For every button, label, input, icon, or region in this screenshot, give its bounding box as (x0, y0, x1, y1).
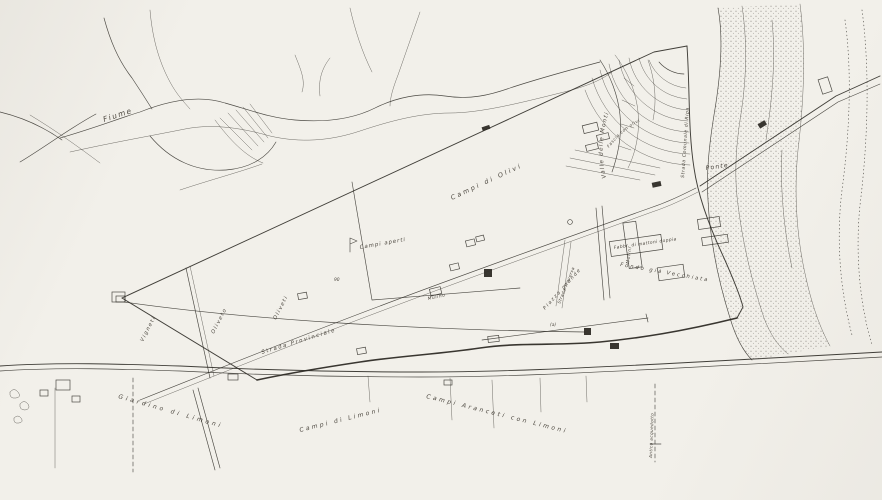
buildings (10, 125, 729, 423)
label-fascia-olivi: Fascia con olivi (606, 118, 641, 149)
label-oliveti: Oliveti (272, 295, 289, 321)
label-strada-traversa: Strada Traversa (556, 266, 575, 304)
label-marker-90: 90 (334, 277, 340, 283)
label-campi-di-olivi: Campi di Olivi (449, 162, 523, 202)
label-fabbrica: Fabbr. di mattoni doppia (613, 236, 677, 251)
parcel-dividers (186, 182, 610, 378)
terraces (566, 58, 690, 188)
map-canvas: Fiume Valle delle Monti Campi di Olivi P… (0, 0, 882, 500)
label-strada-provinciale: Strada Provinciale (261, 327, 337, 355)
label-giardino-di-limoni: Giardino di Limoni (117, 393, 223, 430)
label-oliveto: Oliveto (210, 307, 228, 335)
label-fiume: Fiume (102, 106, 134, 124)
label-marker-a: (a) (550, 322, 556, 328)
label-campi-di-limoni: Campi di Limoni (299, 407, 383, 434)
scanned-map-page: Fiume Valle delle Monti Campi di Olivi P… (0, 0, 882, 500)
label-vigneti: Vigneti (139, 315, 157, 343)
label-acquedotto: Antico acquedotto (648, 413, 655, 459)
label-campi-aperti: Campi aperti (359, 237, 406, 251)
label-campi-aranceti: Campi Aranceti con Limoni (426, 393, 569, 435)
labels: Fiume Valle delle Monti Campi di Olivi P… (102, 106, 729, 459)
riverbed-right (707, 4, 872, 360)
delta-hatch (215, 104, 272, 163)
label-mulino: Mulino (427, 292, 446, 302)
